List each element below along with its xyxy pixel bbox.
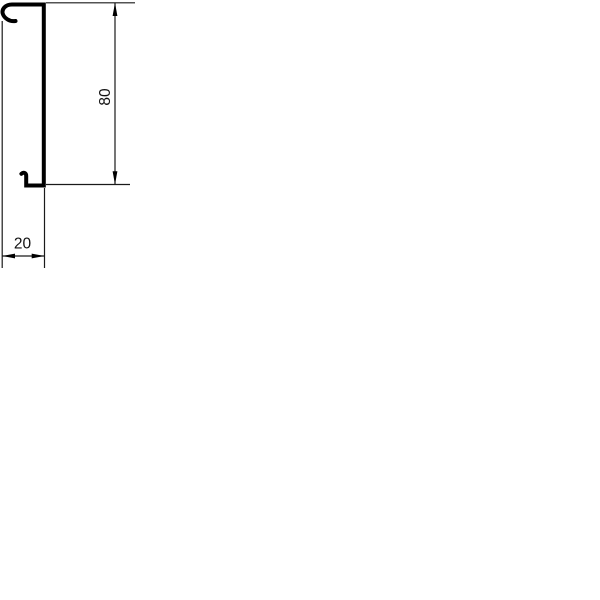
- technical-drawing: 80 20: [0, 0, 600, 600]
- height-dimension: 80: [46, 3, 135, 185]
- arrow-left-icon: [2, 254, 15, 259]
- drawing-canvas: 80 20: [0, 0, 600, 600]
- arrow-down-icon: [113, 171, 118, 184]
- profile-outline: [2, 5, 43, 186]
- profile-path: [2, 5, 43, 186]
- arrow-right-icon: [32, 254, 45, 259]
- height-dimension-label: 80: [97, 88, 114, 106]
- depth-dimension: 20: [2, 21, 44, 268]
- arrow-up-icon: [113, 3, 118, 16]
- depth-dimension-label: 20: [14, 236, 32, 253]
